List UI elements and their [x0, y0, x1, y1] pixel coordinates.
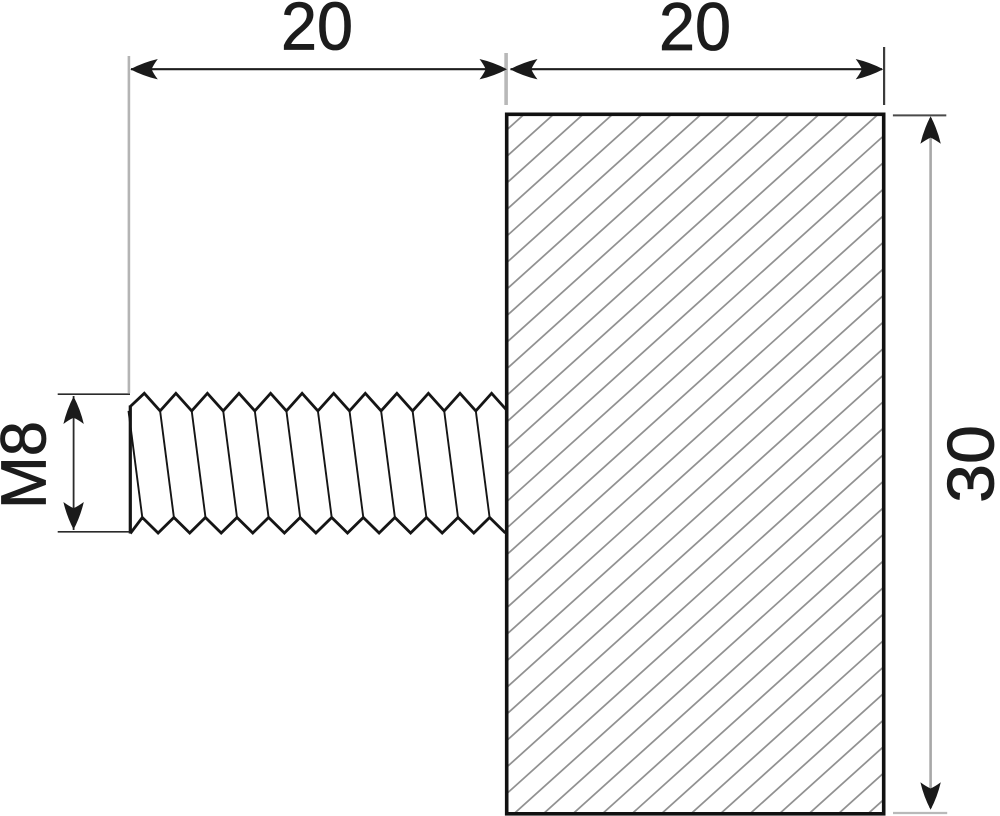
svg-text:20: 20 — [281, 0, 353, 64]
svg-text:M8: M8 — [0, 421, 60, 509]
svg-text:30: 30 — [934, 425, 1000, 503]
svg-text:20: 20 — [659, 0, 731, 65]
